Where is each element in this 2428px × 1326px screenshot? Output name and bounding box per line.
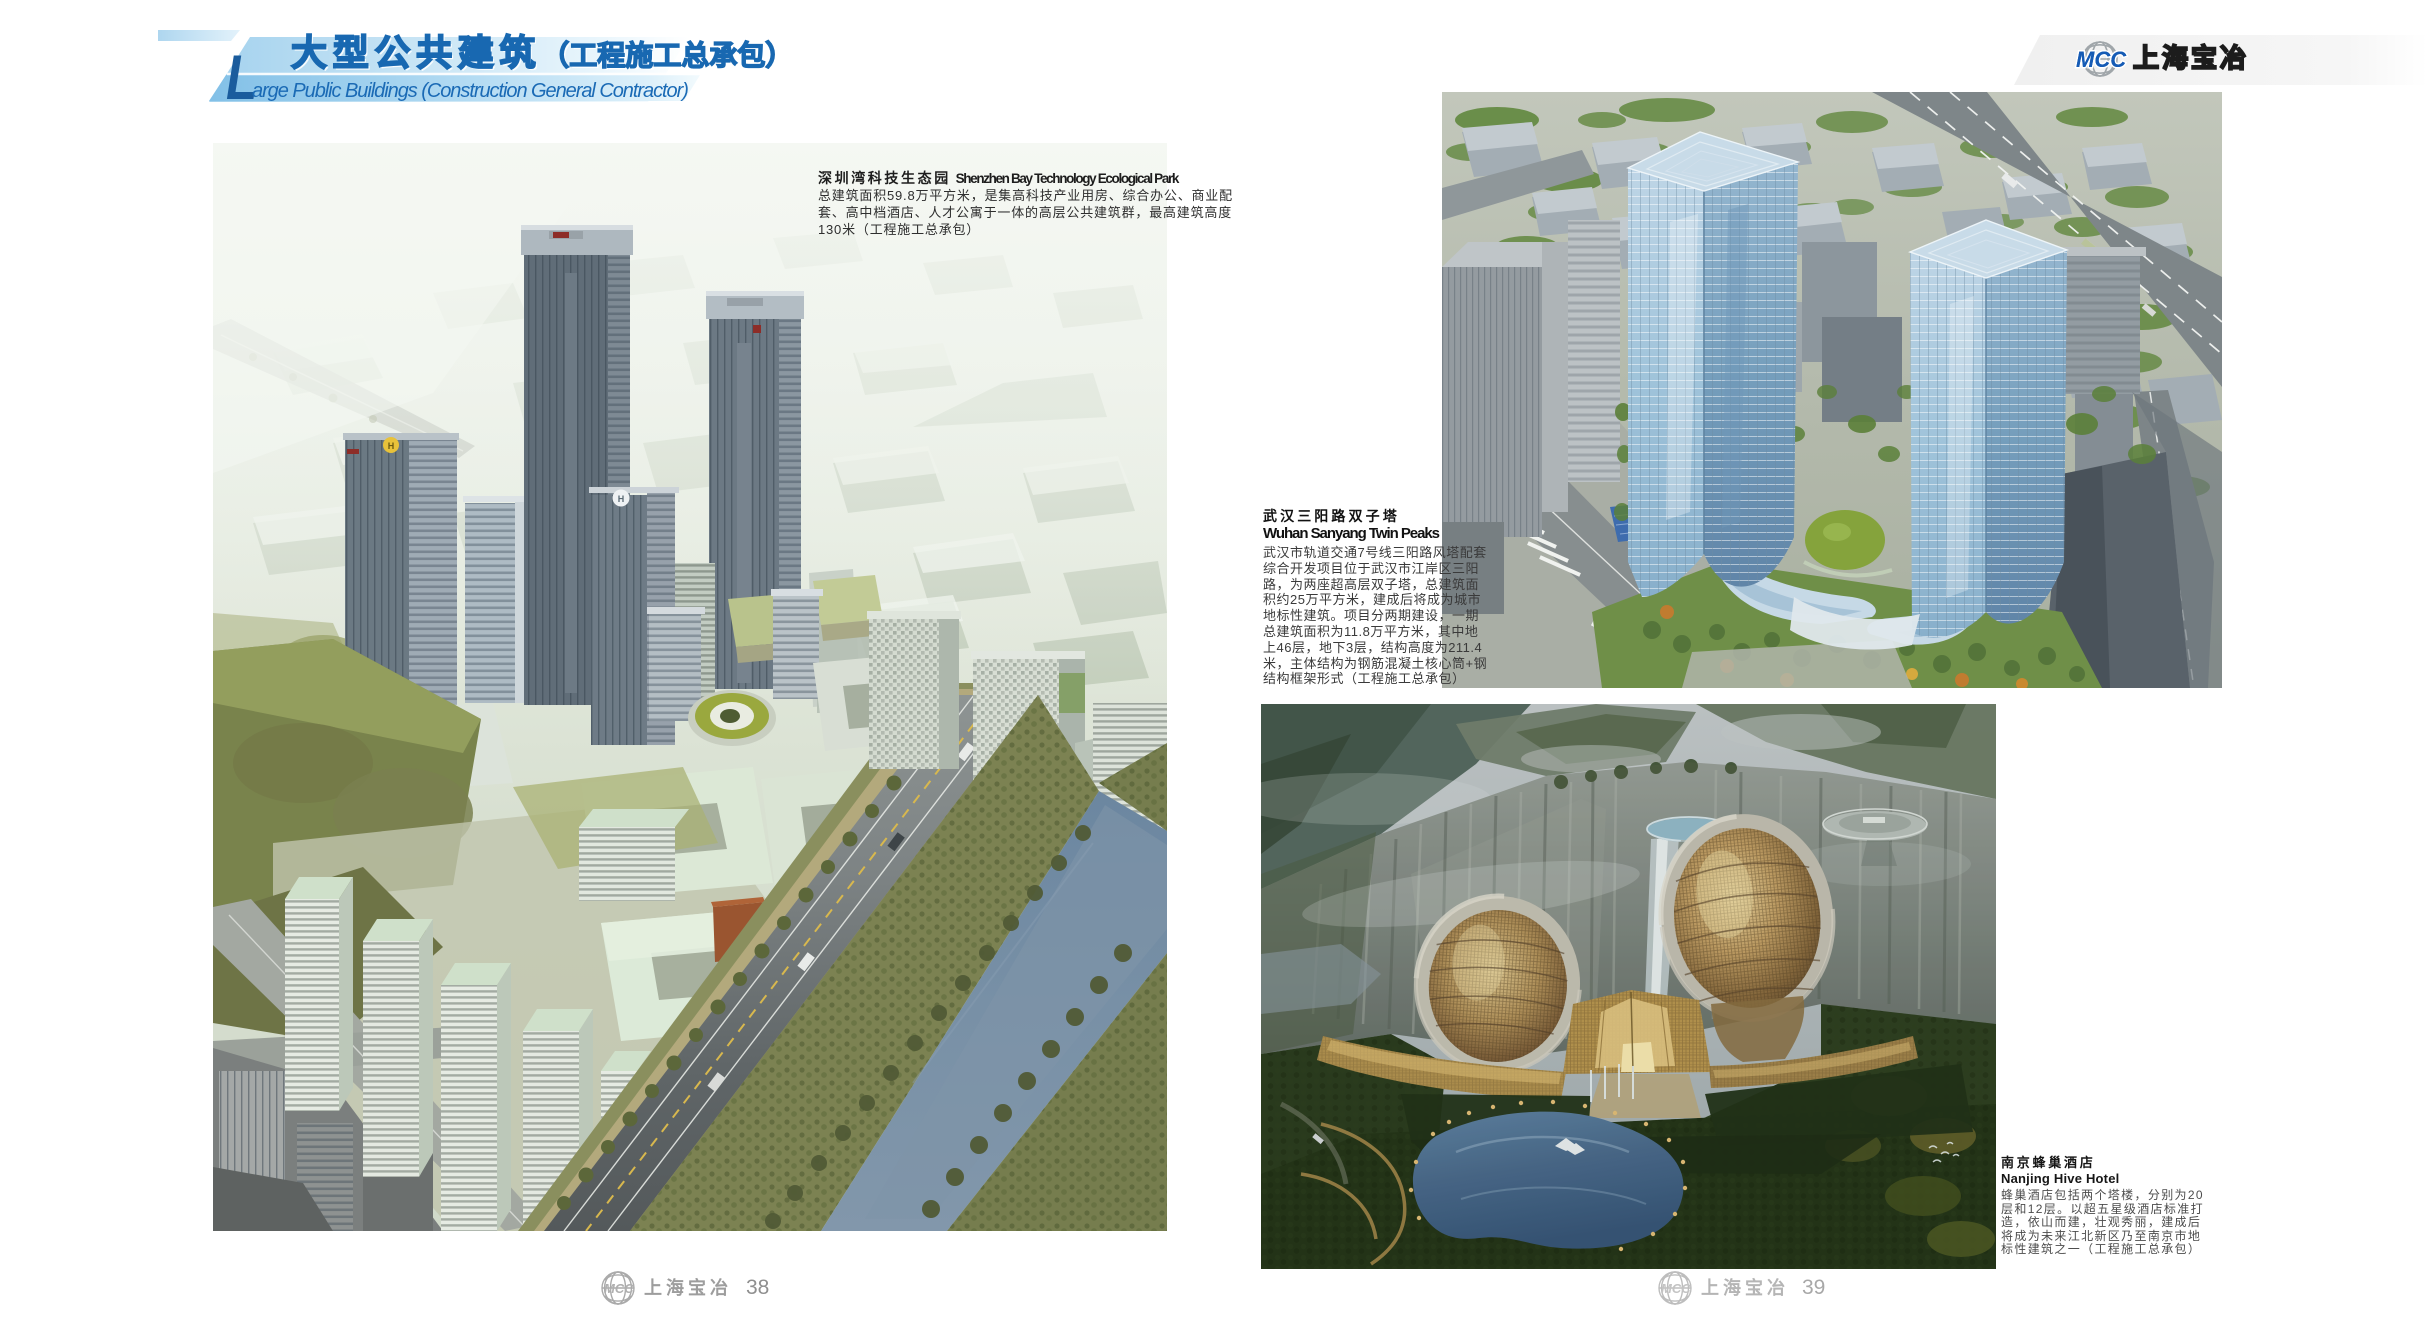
svg-text:MCC: MCC xyxy=(2076,47,2127,72)
svg-text:MCC: MCC xyxy=(1661,1281,1691,1296)
svg-text:MCC: MCC xyxy=(604,1281,634,1296)
svg-text:H: H xyxy=(618,494,625,504)
svg-text:H: H xyxy=(388,441,395,451)
